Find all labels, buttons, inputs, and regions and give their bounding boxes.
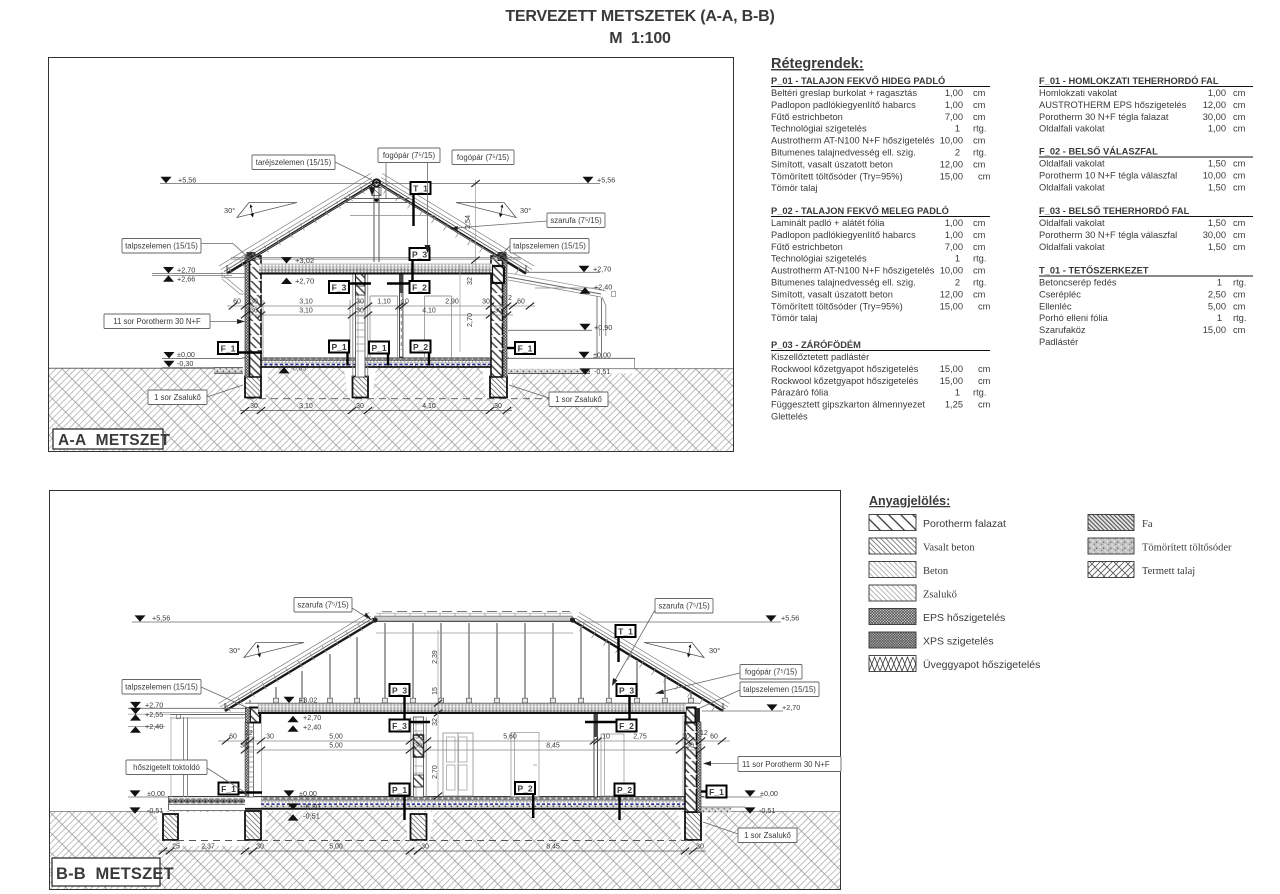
- svg-text:Porhó elleni fólia: Porhó elleni fólia: [1039, 313, 1109, 323]
- svg-text:Simított, vasalt úszatott beto: Simított, vasalt úszatott beton: [771, 159, 893, 169]
- svg-text:30: 30: [696, 844, 704, 851]
- svg-text:+0,90: +0,90: [594, 323, 612, 332]
- svg-text:Beltéri greslap burkolat + rag: Beltéri greslap burkolat + ragasztás: [771, 88, 917, 98]
- svg-text:+2,70: +2,70: [782, 703, 800, 712]
- svg-text:15,00: 15,00: [940, 301, 963, 311]
- svg-text:F_03 - BELSŐ TEHERHORDÓ FAL: F_03 - BELSŐ TEHERHORDÓ FAL: [1039, 205, 1190, 216]
- svg-text:1 sor Zsalukő: 1 sor Zsalukő: [555, 395, 602, 404]
- svg-text:10: 10: [401, 299, 409, 306]
- svg-text:szarufa (7⁵/15): szarufa (7⁵/15): [297, 601, 349, 610]
- svg-text:Oldalfali vakolat: Oldalfali vakolat: [1039, 124, 1105, 134]
- svg-text:cm: cm: [978, 301, 991, 311]
- svg-text:Porotherm 30 N+F tégla falazat: Porotherm 30 N+F tégla falazat: [1039, 112, 1169, 122]
- svg-text:+2,66: +2,66: [177, 275, 195, 284]
- svg-text:Tömörített töltősóder: Tömörített töltősóder: [1142, 543, 1232, 554]
- svg-text:30: 30: [494, 308, 502, 315]
- svg-text:P_03 - ZÁRÓFÖDÉM: P_03 - ZÁRÓFÖDÉM: [771, 339, 861, 350]
- svg-text:cm: cm: [1233, 301, 1246, 311]
- svg-text:Austrotherm AT-N100 N+F hőszig: Austrotherm AT-N100 N+F hőszigetelés: [771, 266, 935, 276]
- svg-text:60: 60: [233, 299, 241, 306]
- svg-text:Porotherm 10 N+F tégla válaszf: Porotherm 10 N+F tégla válaszfal: [1039, 170, 1177, 180]
- svg-text:cm: cm: [973, 159, 986, 169]
- svg-text:P_2: P_2: [617, 785, 632, 795]
- svg-text:5,60: 5,60: [503, 734, 517, 741]
- svg-text:-0,51: -0,51: [759, 806, 775, 815]
- svg-text:1: 1: [1217, 278, 1222, 288]
- svg-text:3,10: 3,10: [299, 299, 313, 306]
- svg-text:Függesztett gipszkarton álmenn: Függesztett gipszkarton álmennyezet: [771, 400, 925, 410]
- svg-text:F_2: F_2: [412, 283, 427, 293]
- svg-text:-0,30: -0,30: [303, 802, 320, 811]
- svg-text:4,10: 4,10: [422, 308, 436, 315]
- svg-text:60: 60: [229, 734, 237, 741]
- svg-text:cm: cm: [973, 218, 986, 228]
- svg-text:1 sor Zsalukő: 1 sor Zsalukő: [744, 831, 791, 840]
- svg-text:AUSTROTHERM EPS hőszigetelés: AUSTROTHERM EPS hőszigetelés: [1039, 100, 1187, 110]
- svg-text:7,00: 7,00: [945, 112, 963, 122]
- svg-text:30,00: 30,00: [1203, 112, 1226, 122]
- svg-text:+2,55: +2,55: [145, 710, 163, 719]
- svg-text:Oldalfali vakolat: Oldalfali vakolat: [1039, 182, 1105, 192]
- svg-text:12: 12: [245, 730, 253, 737]
- svg-text:Homlokzati vakolat: Homlokzati vakolat: [1039, 88, 1117, 98]
- svg-text:30: 30: [250, 299, 258, 306]
- svg-text:10,00: 10,00: [940, 136, 963, 146]
- svg-text:cm: cm: [1233, 289, 1246, 299]
- svg-text:1,00: 1,00: [1208, 124, 1226, 134]
- svg-text:fogópár (7⁵/15): fogópár (7⁵/15): [457, 153, 510, 162]
- svg-text:Porotherm falazat: Porotherm falazat: [923, 518, 1006, 530]
- svg-text:2: 2: [955, 148, 960, 158]
- svg-text:Anyagjelölés:: Anyagjelölés:: [869, 494, 950, 508]
- svg-text:Fűtő estrichbeton: Fűtő estrichbeton: [771, 242, 843, 252]
- svg-text:P_1: P_1: [371, 343, 386, 353]
- svg-text:cm: cm: [973, 230, 986, 240]
- svg-text:Fa: Fa: [1142, 519, 1153, 530]
- svg-text:Padlástér: Padlástér: [1039, 337, 1078, 347]
- svg-text:F_3: F_3: [392, 721, 407, 731]
- svg-text:Párazáró fólia: Párazáró fólia: [771, 388, 829, 398]
- svg-text:rtg.: rtg.: [973, 388, 986, 398]
- svg-text:cm: cm: [1233, 170, 1246, 180]
- svg-text:Tömör talaj: Tömör talaj: [771, 313, 818, 323]
- svg-text:2,70: 2,70: [465, 313, 474, 327]
- svg-text:cm: cm: [978, 376, 991, 386]
- svg-text:fogópár (7⁵/15): fogópár (7⁵/15): [383, 151, 436, 160]
- svg-text:4,10: 4,10: [422, 403, 436, 410]
- svg-text:Oldalfali vakolat: Oldalfali vakolat: [1039, 218, 1105, 228]
- svg-text:Szarufaköz: Szarufaköz: [1039, 325, 1086, 335]
- svg-text:Bitumenes talajnedvesség ell.: Bitumenes talajnedvesség ell. szig.: [771, 148, 916, 158]
- svg-text:cm: cm: [978, 364, 991, 374]
- svg-text:30: 30: [356, 403, 364, 410]
- svg-text:cm: cm: [1233, 218, 1246, 228]
- svg-text:-0,51: -0,51: [594, 367, 610, 376]
- svg-text:15,00: 15,00: [940, 376, 963, 386]
- svg-text:1,00: 1,00: [945, 218, 963, 228]
- svg-text:Oldalfali vakolat: Oldalfali vakolat: [1039, 242, 1105, 252]
- svg-text:8,45: 8,45: [546, 844, 560, 851]
- svg-text:1 sor Zsalukő: 1 sor Zsalukő: [154, 393, 201, 402]
- svg-text:8,45: 8,45: [546, 743, 560, 750]
- svg-text:Termett talaj: Termett talaj: [1142, 566, 1195, 577]
- svg-text:-0,30: -0,30: [177, 359, 193, 368]
- svg-text:F_1: F_1: [709, 787, 724, 797]
- svg-text:+2,40: +2,40: [145, 722, 163, 731]
- svg-text:taréjszelemen (15/15): taréjszelemen (15/15): [256, 158, 332, 167]
- svg-text:F_1: F_1: [518, 344, 533, 354]
- svg-text:+2,70: +2,70: [593, 265, 611, 274]
- svg-text:±0,00: ±0,00: [299, 789, 317, 798]
- svg-text:cm: cm: [1233, 124, 1246, 134]
- svg-text:1,00: 1,00: [1208, 88, 1226, 98]
- svg-text:3,10: 3,10: [299, 308, 313, 315]
- svg-text:2,37: 2,37: [201, 844, 215, 851]
- svg-text:30: 30: [250, 403, 258, 410]
- svg-text:Austrotherm AT-N100 N+F hőszig: Austrotherm AT-N100 N+F hőszigetelés: [771, 136, 935, 146]
- svg-text:talpszelemen (15/15): talpszelemen (15/15): [125, 242, 198, 251]
- svg-text:B-B METSZET: B-B METSZET: [56, 865, 174, 883]
- svg-text:Porotherm 30 N+F tégla válaszf: Porotherm 30 N+F tégla válaszfal: [1039, 230, 1177, 240]
- svg-text:-0,51: -0,51: [147, 806, 163, 815]
- svg-text:30,00: 30,00: [1203, 230, 1226, 240]
- svg-text:30: 30: [250, 308, 258, 315]
- svg-text:30°: 30°: [229, 646, 240, 655]
- svg-text:P_2: P_2: [413, 342, 428, 352]
- svg-text:Tömör talaj: Tömör talaj: [771, 183, 818, 193]
- svg-text:5,00: 5,00: [1208, 301, 1226, 311]
- svg-text:60: 60: [710, 734, 718, 741]
- svg-text:1: 1: [955, 124, 960, 134]
- svg-text:±0,00: ±0,00: [760, 789, 778, 798]
- svg-text:Tömörített töltősóder (Try=95%: Tömörített töltősóder (Try=95%): [771, 171, 903, 181]
- svg-text:7,00: 7,00: [945, 242, 963, 252]
- svg-text:25: 25: [172, 844, 180, 851]
- svg-text:Kiszellőztetett padlástér: Kiszellőztetett padlástér: [771, 352, 869, 362]
- svg-text:30: 30: [686, 743, 694, 750]
- svg-text:EPS hőszigetelés: EPS hőszigetelés: [923, 612, 1005, 624]
- svg-text:1,25: 1,25: [945, 400, 963, 410]
- svg-text:Zsalukő: Zsalukő: [923, 590, 957, 601]
- svg-text:+5,56: +5,56: [781, 614, 799, 623]
- svg-text:cm: cm: [973, 266, 986, 276]
- svg-text:12,00: 12,00: [940, 289, 963, 299]
- svg-text:30°: 30°: [709, 646, 720, 655]
- svg-text:Simított, vasalt úszatott beto: Simított, vasalt úszatott beton: [771, 289, 893, 299]
- svg-text:5,00: 5,00: [329, 743, 343, 750]
- svg-text:5,00: 5,00: [329, 734, 343, 741]
- svg-text:15,00: 15,00: [940, 364, 963, 374]
- svg-text:talpszelemen (15/15): talpszelemen (15/15): [513, 242, 586, 251]
- svg-text:Rockwool kőzetgyapot hőszigete: Rockwool kőzetgyapot hőszigetelés: [771, 376, 919, 386]
- svg-text:Technológiai szigetelés: Technológiai szigetelés: [771, 124, 867, 134]
- svg-text:TERVEZETT METSZETEK (A-A, B-B): TERVEZETT METSZETEK (A-A, B-B): [505, 8, 774, 25]
- svg-text:11 sor Porotherm 30 N+F: 11 sor Porotherm 30 N+F: [742, 760, 830, 769]
- svg-text:30: 30: [356, 308, 364, 315]
- svg-text:+5,56: +5,56: [152, 614, 170, 623]
- svg-text:Tömörített töltősóder (Try=95%: Tömörített töltősóder (Try=95%): [771, 301, 903, 311]
- svg-text:Padlopon padlókiegyenlítő haba: Padlopon padlókiegyenlítő habarcs: [771, 230, 916, 240]
- svg-text:+5,56: +5,56: [597, 176, 615, 185]
- svg-text:rtg.: rtg.: [1233, 278, 1246, 288]
- svg-text:±0,00: ±0,00: [593, 351, 611, 360]
- svg-text:rtg.: rtg.: [1233, 313, 1246, 323]
- svg-text:1: 1: [955, 388, 960, 398]
- svg-text:cm: cm: [1233, 182, 1246, 192]
- svg-text:2,90: 2,90: [445, 299, 459, 306]
- svg-text:30°: 30°: [520, 206, 531, 215]
- svg-text:1,50: 1,50: [1208, 182, 1226, 192]
- svg-text:1,50: 1,50: [1208, 159, 1226, 169]
- svg-text:P_01 - TALAJON FEKVŐ HIDEG PAD: P_01 - TALAJON FEKVŐ HIDEG PADLÓ: [771, 75, 945, 86]
- svg-text:-0,51: -0,51: [303, 812, 320, 821]
- svg-text:rtg.: rtg.: [973, 124, 986, 134]
- svg-text:talpszelemen (15/15): talpszelemen (15/15): [125, 683, 198, 692]
- svg-text:5,00: 5,00: [329, 844, 343, 851]
- svg-text:+3,02: +3,02: [295, 256, 314, 265]
- svg-text:T_1: T_1: [413, 184, 428, 194]
- svg-text:M 1:100: M 1:100: [609, 30, 671, 47]
- svg-text:cm: cm: [973, 136, 986, 146]
- svg-text:cm: cm: [973, 100, 986, 110]
- svg-text:11 sor Porotherm 30 N+F: 11 sor Porotherm 30 N+F: [113, 317, 201, 326]
- svg-text:30: 30: [421, 844, 429, 851]
- svg-text:cm: cm: [978, 171, 991, 181]
- svg-text:Laminált padló + alátét fólia: Laminált padló + alátét fólia: [771, 218, 885, 228]
- svg-text:2,75: 2,75: [633, 734, 647, 741]
- svg-text:XPS szigetelés: XPS szigetelés: [923, 636, 994, 648]
- svg-text:cm: cm: [1233, 112, 1246, 122]
- svg-text:12,00: 12,00: [940, 159, 963, 169]
- svg-text:cm: cm: [1233, 230, 1246, 240]
- svg-text:10: 10: [602, 734, 610, 741]
- svg-text:1,10: 1,10: [377, 299, 391, 306]
- svg-text:30: 30: [414, 743, 422, 750]
- svg-text:cm: cm: [973, 289, 986, 299]
- svg-text:cm: cm: [973, 112, 986, 122]
- svg-text:F_01 - HOMLOKZATI TEHERHORDÓ F: F_01 - HOMLOKZATI TEHERHORDÓ FAL: [1039, 75, 1219, 86]
- svg-text:+2,40: +2,40: [594, 283, 612, 292]
- svg-text:cm: cm: [1233, 242, 1246, 252]
- svg-text:+3,02: +3,02: [299, 696, 317, 705]
- svg-text:T_1: T_1: [618, 627, 633, 637]
- svg-text:±0,00: ±0,00: [147, 789, 165, 798]
- svg-text:+5,56: +5,56: [178, 176, 196, 185]
- svg-text:Betoncserép fedés: Betoncserép fedés: [1039, 278, 1117, 288]
- svg-text:10,00: 10,00: [940, 266, 963, 276]
- svg-text:Ellenléc: Ellenléc: [1039, 301, 1072, 311]
- svg-text:szarufa (7⁵/15): szarufa (7⁵/15): [550, 216, 602, 225]
- svg-text:szarufa (7⁵/15): szarufa (7⁵/15): [658, 602, 710, 611]
- svg-text:cm: cm: [1233, 325, 1246, 335]
- svg-text:+2,70: +2,70: [295, 277, 314, 286]
- svg-text:3,10: 3,10: [299, 403, 313, 410]
- svg-text:30: 30: [240, 743, 248, 750]
- svg-text:rtg.: rtg.: [973, 148, 986, 158]
- svg-text:30: 30: [415, 734, 423, 741]
- svg-text:15,00: 15,00: [940, 171, 963, 181]
- svg-text:cm: cm: [978, 400, 991, 410]
- svg-text:cm: cm: [973, 242, 986, 252]
- svg-text:Cserépléc: Cserépléc: [1039, 289, 1081, 299]
- svg-text:1,00: 1,00: [945, 230, 963, 240]
- svg-text:P_2: P_2: [517, 784, 532, 794]
- svg-text:P_3: P_3: [412, 250, 427, 260]
- svg-text:60: 60: [517, 299, 525, 306]
- svg-text:cm: cm: [1233, 88, 1246, 98]
- svg-text:cm: cm: [1233, 100, 1246, 110]
- svg-text:±0,00: ±0,00: [177, 350, 195, 359]
- svg-text:30: 30: [256, 844, 264, 851]
- svg-text:+2,70: +2,70: [145, 701, 163, 710]
- svg-text:30: 30: [356, 299, 364, 306]
- svg-text:Rockwool kőzetgyapot hőszigete: Rockwool kőzetgyapot hőszigetelés: [771, 364, 919, 374]
- svg-text:-0,05: -0,05: [291, 366, 306, 373]
- svg-text:F_02 - BELSŐ VÁLASZFAL: F_02 - BELSŐ VÁLASZFAL: [1039, 146, 1158, 157]
- svg-text:rtg.: rtg.: [973, 278, 986, 288]
- svg-text:F_2: F_2: [619, 721, 634, 731]
- svg-text:1,00: 1,00: [945, 88, 963, 98]
- svg-text:Glettelés: Glettelés: [771, 412, 808, 422]
- svg-text:cm: cm: [973, 88, 986, 98]
- svg-text:30: 30: [482, 299, 490, 306]
- svg-text:talpszelemen (15/15): talpszelemen (15/15): [743, 685, 816, 694]
- svg-text:Fűtő estrichbeton: Fűtő estrichbeton: [771, 112, 843, 122]
- svg-text:30: 30: [266, 734, 274, 741]
- svg-text:P_3: P_3: [392, 686, 407, 696]
- svg-text:P_02 - TALAJON FEKVŐ MELEG PAD: P_02 - TALAJON FEKVŐ MELEG PADLÓ: [771, 205, 949, 216]
- svg-text:30°: 30°: [224, 206, 235, 215]
- svg-text:P_1: P_1: [392, 785, 407, 795]
- svg-text:+2,70: +2,70: [177, 266, 195, 275]
- svg-text:2: 2: [955, 278, 960, 288]
- svg-text:Oldalfali vakolat: Oldalfali vakolat: [1039, 159, 1105, 169]
- svg-text:+2,40: +2,40: [303, 723, 321, 732]
- svg-text:P_1: P_1: [331, 342, 346, 352]
- svg-text:1: 1: [955, 254, 960, 264]
- svg-text:1: 1: [1217, 313, 1222, 323]
- svg-text:F_1: F_1: [221, 344, 236, 354]
- svg-text:F_3: F_3: [332, 283, 347, 293]
- svg-text:32: 32: [465, 277, 474, 285]
- svg-text:cm: cm: [1233, 159, 1246, 169]
- svg-text:30: 30: [494, 403, 502, 410]
- svg-text:Beton: Beton: [923, 566, 949, 577]
- svg-text:rtg.: rtg.: [973, 254, 986, 264]
- svg-text:30: 30: [682, 734, 690, 741]
- svg-text:T_01 - TETŐSZERKEZET: T_01 - TETŐSZERKEZET: [1039, 265, 1149, 276]
- svg-text:Vasalt beton: Vasalt beton: [923, 543, 975, 554]
- svg-text:1,50: 1,50: [1208, 218, 1226, 228]
- svg-text:Padlopon padlókiegyenlítő haba: Padlopon padlókiegyenlítő habarcs: [771, 100, 916, 110]
- svg-text:P_3: P_3: [619, 686, 634, 696]
- svg-text:Rétegrendek:: Rétegrendek:: [771, 56, 864, 72]
- svg-text:12,00: 12,00: [1203, 100, 1226, 110]
- svg-text:15,00: 15,00: [1203, 325, 1226, 335]
- svg-text:hőszigetelt toktoldó: hőszigetelt toktoldó: [133, 763, 200, 772]
- svg-text:Technológiai szigetelés: Technológiai szigetelés: [771, 254, 867, 264]
- svg-text:Bitumenes talajnedvesség ell.: Bitumenes talajnedvesség ell. szig.: [771, 278, 916, 288]
- svg-text:2,50: 2,50: [1208, 289, 1226, 299]
- svg-text:Üveggyapot hőszigetelés: Üveggyapot hőszigetelés: [923, 659, 1040, 671]
- svg-text:fogópár (7⁵/15): fogópár (7⁵/15): [745, 668, 798, 677]
- svg-text:1,50: 1,50: [1208, 242, 1226, 252]
- svg-text:12: 12: [700, 730, 708, 737]
- svg-text:+2,70: +2,70: [303, 713, 321, 722]
- svg-text:10,00: 10,00: [1203, 170, 1226, 180]
- svg-text:1,00: 1,00: [945, 100, 963, 110]
- svg-text:2: 2: [508, 295, 512, 302]
- svg-text:A-A METSZET: A-A METSZET: [58, 432, 170, 449]
